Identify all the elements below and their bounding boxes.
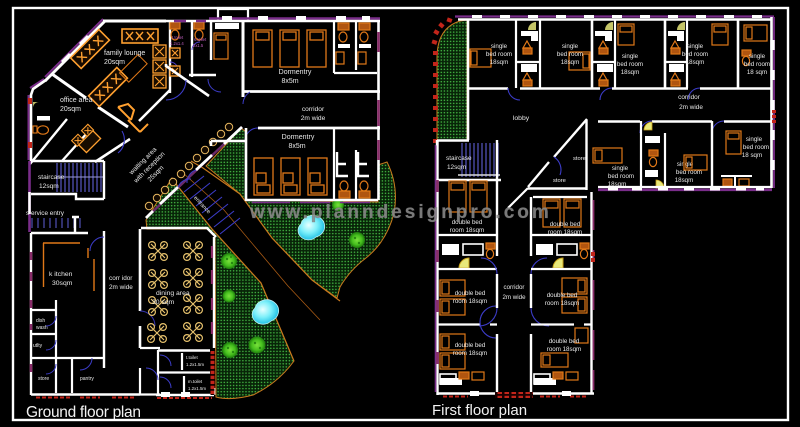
svg-text:pantry: pantry [80,376,94,382]
svg-text:corridor: corridor [302,106,325,113]
svg-text:staircase: staircase [38,174,65,181]
svg-text:20sqm: 20sqm [104,59,125,66]
svg-text:double bed: double bed [549,338,580,345]
svg-text:s ervice entry: s ervice entry [26,210,65,217]
svg-text:12sqm: 12sqm [39,183,59,190]
svg-text:2m wide: 2m wide [679,104,703,111]
svg-text:1.2x1.4: 1.2x1.4 [170,41,184,46]
svg-text:bed room: bed room [486,51,512,58]
svg-text:bed room: bed room [743,144,769,151]
svg-text:corr idor: corr idor [109,275,133,282]
svg-text:store: store [38,376,49,382]
svg-text:18sqm: 18sqm [675,177,694,184]
svg-text:2m wide: 2m wide [109,284,133,291]
svg-text:room 18sqm: room 18sqm [547,346,581,353]
svg-text:t.toilet: t.toilet [186,355,198,360]
svg-text:corridor: corridor [504,284,525,291]
svg-text:Dormentry: Dormentry [282,134,315,141]
svg-text:t.toilet: t.toilet [172,35,184,40]
svg-text:store: store [573,156,586,162]
svg-text:bed room: bed room [557,51,583,58]
svg-text:single: single [562,43,579,50]
svg-text:dining area: dining area [156,290,190,297]
svg-text:18sqm: 18sqm [490,59,509,66]
svg-text:single: single [622,53,639,60]
svg-text:18sqm: 18sqm [561,59,580,66]
svg-text:store: store [553,178,566,184]
svg-text:bed room: bed room [617,61,643,68]
svg-text:family lounge: family lounge [104,50,145,57]
svg-text:12sqm: 12sqm [447,164,466,171]
svg-text:dish: dish [36,318,45,324]
svg-text:Dormentry: Dormentry [279,69,312,76]
svg-text:30 sqm: 30 sqm [152,299,175,306]
svg-text:k itchen: k itchen [49,271,73,278]
svg-text:18 sqm: 18 sqm [742,152,762,159]
svg-text:bed room: bed room [744,61,770,68]
svg-text:single: single [749,53,766,60]
svg-text:office area: office area [60,97,93,104]
svg-text:20sqm: 20sqm [60,106,81,113]
svg-text:double bed: double bed [550,221,581,228]
svg-text:m.toilet: m.toilet [188,379,203,384]
svg-text:staircase: staircase [446,155,472,162]
svg-text:single: single [687,43,704,50]
svg-text:First floor plan: First floor plan [432,402,527,419]
svg-text:room 18sqm: room 18sqm [450,227,484,234]
svg-text:utlty: utlty [33,343,43,349]
svg-text:1.2x1.5m: 1.2x1.5m [188,386,206,391]
svg-text:double bed: double bed [455,342,486,349]
svg-text:lobby: lobby [513,115,530,122]
svg-text:room 18sqm: room 18sqm [453,350,487,357]
svg-text:8x5m: 8x5m [281,78,298,85]
svg-text:single: single [612,165,629,172]
svg-text:2m wide: 2m wide [502,294,526,301]
svg-text:double bed: double bed [455,290,486,297]
svg-text:18sqm: 18sqm [621,69,640,76]
svg-text:corridor: corridor [678,94,701,101]
svg-text:s.toilet: s.toilet [194,37,207,42]
svg-text:single: single [677,161,694,168]
svg-text:2m wide: 2m wide [301,115,326,122]
svg-text:2x1.5: 2x1.5 [193,43,204,48]
svg-text:30sqm: 30sqm [52,280,73,287]
svg-text:bed room: bed room [682,51,708,58]
svg-text:www.planndesignpro.com: www.planndesignpro.com [249,202,552,223]
svg-text:single: single [491,43,508,50]
svg-text:Ground floor plan: Ground floor plan [26,404,141,421]
svg-text:18sqm: 18sqm [686,59,705,66]
svg-text:bed room: bed room [608,173,634,180]
svg-text:single: single [746,136,763,143]
svg-text:18 sqm: 18 sqm [747,69,767,76]
svg-text:room 18sqm: room 18sqm [453,298,487,305]
svg-text:8x5m: 8x5m [288,143,305,150]
svg-text:room 18sqm: room 18sqm [545,300,579,307]
svg-text:1.2x1.5m: 1.2x1.5m [186,362,204,367]
svg-text:double bed: double bed [547,292,578,299]
